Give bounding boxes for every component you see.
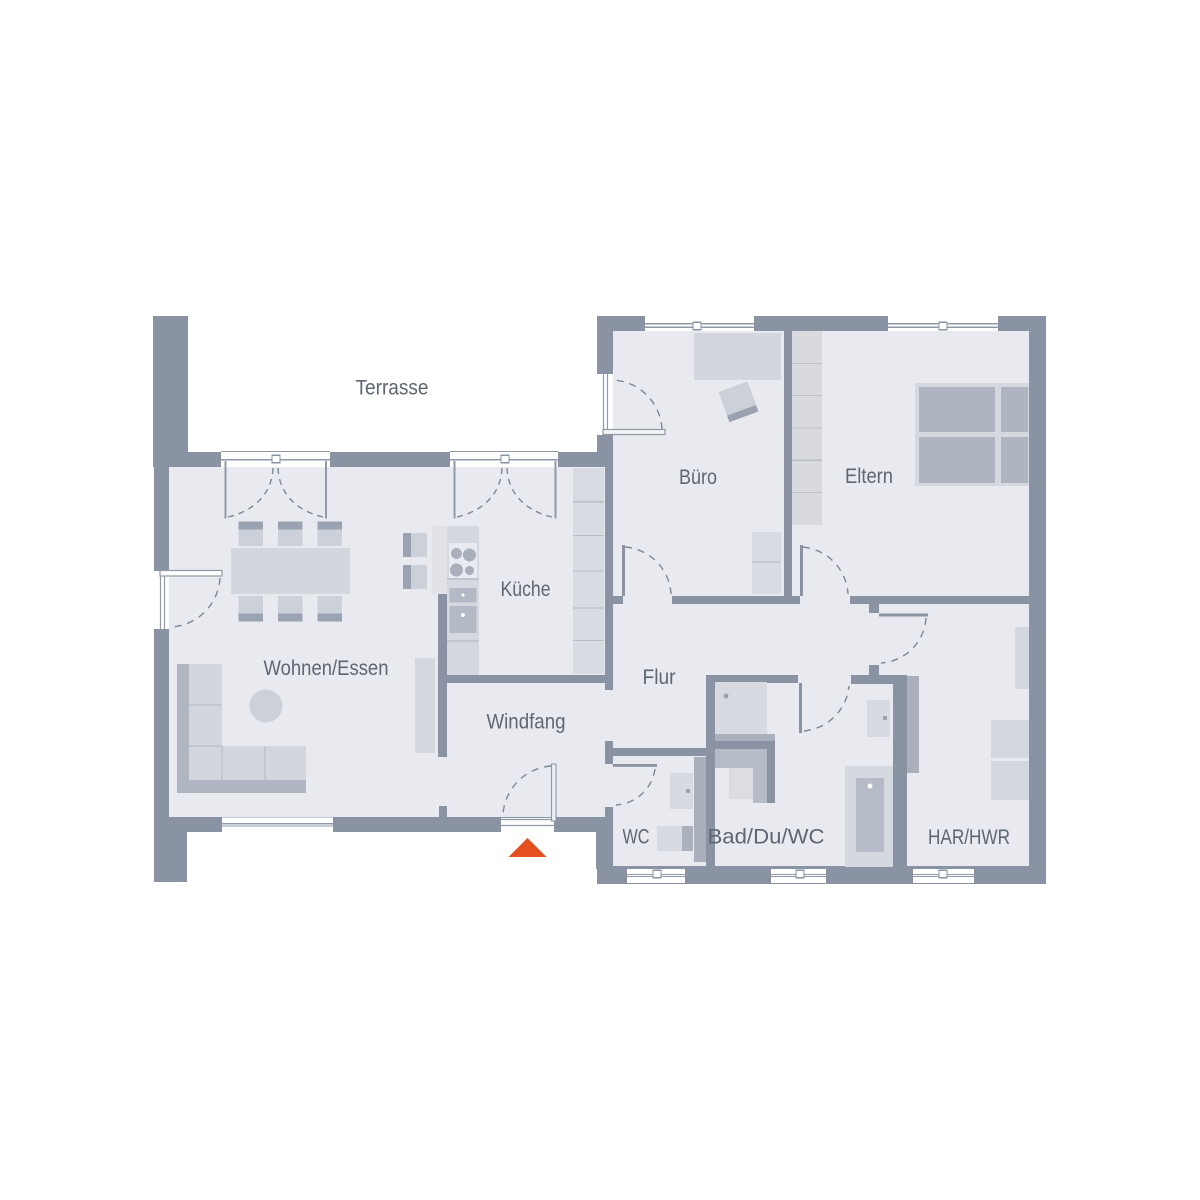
svg-text:Flur: Flur [643,666,676,689]
svg-text:Küche: Küche [501,578,551,601]
svg-text:Terrasse: Terrasse [356,377,429,400]
svg-text:Bad/Du/WC: Bad/Du/WC [708,826,825,849]
svg-text:Wohnen/Essen: Wohnen/Essen [264,657,389,680]
svg-text:WC: WC [623,826,650,849]
svg-text:Eltern: Eltern [845,465,893,488]
svg-text:Büro: Büro [679,466,717,489]
svg-text:Windfang: Windfang [487,711,566,734]
svg-text:HAR/HWR: HAR/HWR [928,826,1010,849]
